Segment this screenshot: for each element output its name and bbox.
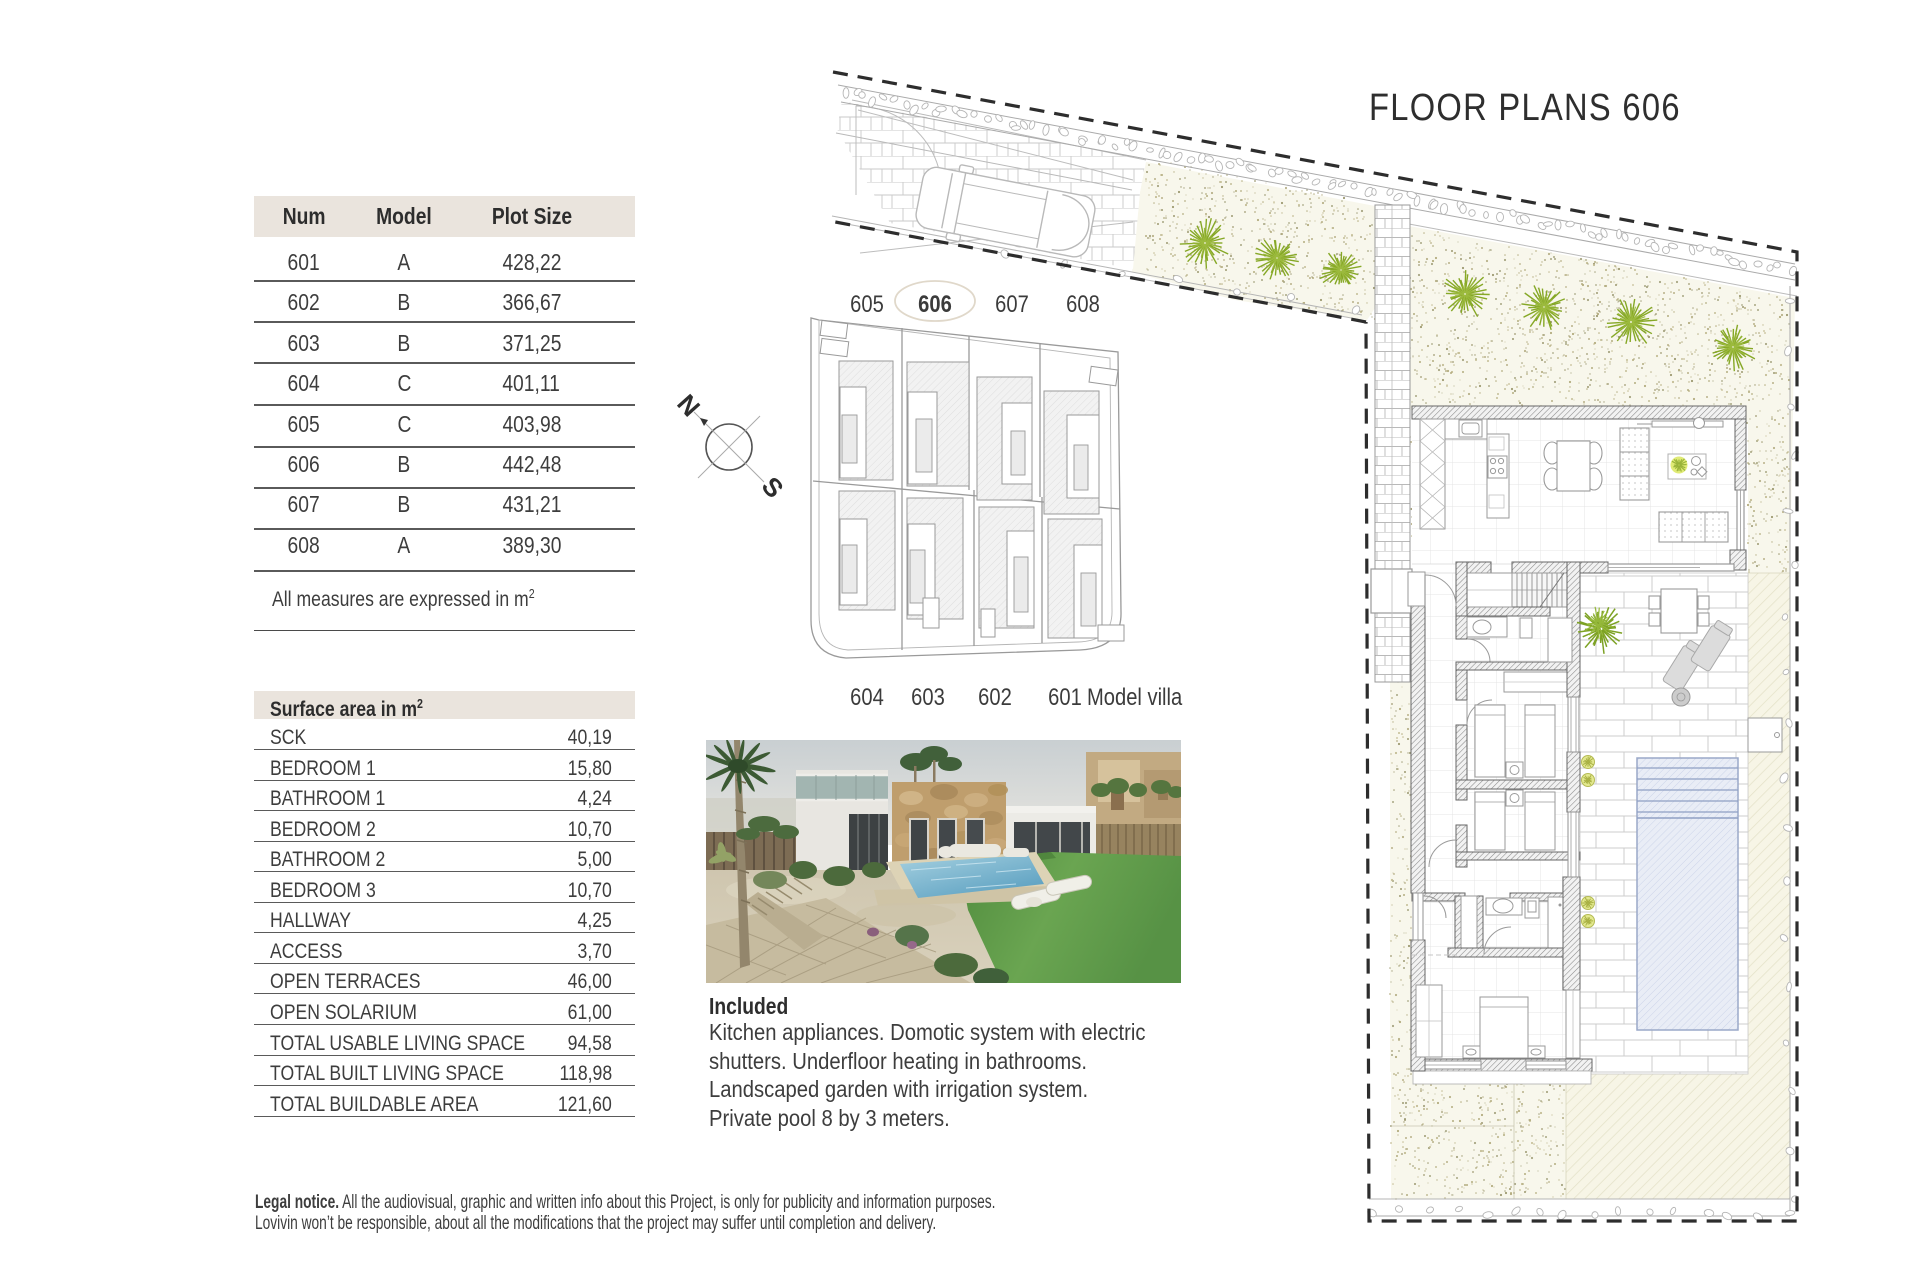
svg-text:602: 602 [978,683,1012,710]
svg-text:S: S [756,471,790,504]
svg-text:607: 607 [995,290,1029,317]
svg-text:608: 608 [1066,290,1100,317]
svg-text:606: 606 [918,290,952,317]
svg-text:N: N [671,388,706,422]
svg-text:603: 603 [911,683,945,710]
svg-text:604: 604 [850,683,884,710]
svg-text:Model villa: Model villa [1087,683,1183,710]
svg-text:605: 605 [850,290,884,317]
svg-text:601: 601 [1048,683,1082,710]
